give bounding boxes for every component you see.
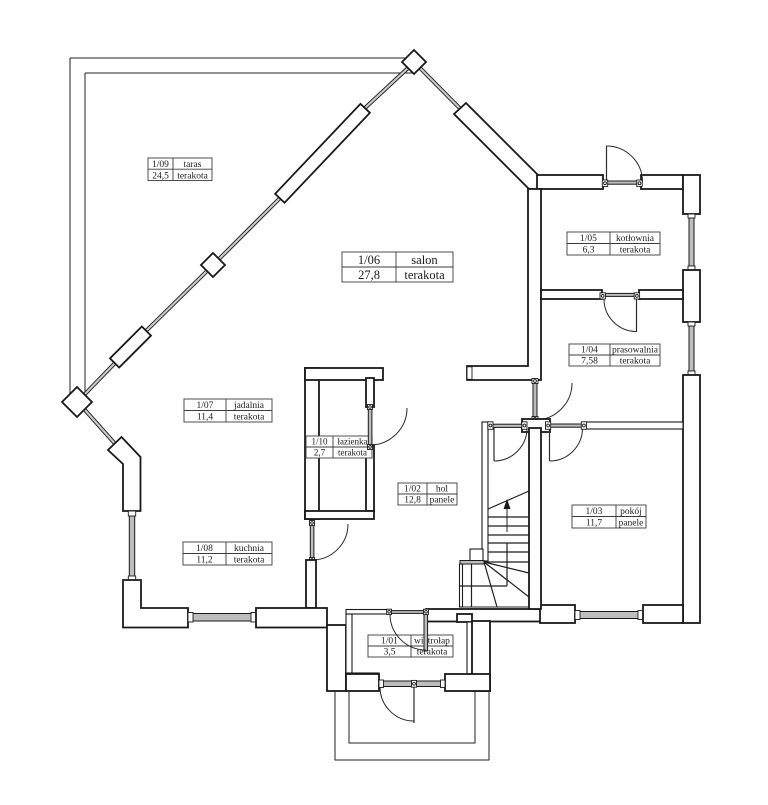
svg-text:2,7: 2,7: [314, 448, 326, 458]
svg-text:terakota: terakota: [417, 648, 448, 658]
svg-text:salon: salon: [411, 253, 438, 267]
svg-text:11,2: 11,2: [196, 556, 213, 566]
svg-text:wiatrołap: wiatrołap: [414, 637, 450, 647]
svg-text:panele: panele: [430, 496, 455, 506]
svg-text:kuchnia: kuchnia: [234, 544, 265, 554]
svg-text:terakota: terakota: [338, 448, 367, 458]
svg-text:1/05: 1/05: [580, 234, 597, 244]
svg-text:1/01: 1/01: [381, 637, 398, 647]
svg-text:1/06: 1/06: [358, 253, 380, 267]
svg-text:terakota: terakota: [234, 413, 265, 423]
svg-text:hol: hol: [436, 485, 449, 495]
svg-text:1/08: 1/08: [196, 544, 213, 554]
svg-text:27,8: 27,8: [358, 268, 380, 282]
svg-text:taras: taras: [184, 160, 202, 170]
svg-text:prasowalnia: prasowalnia: [612, 346, 659, 356]
svg-text:jadalnia: jadalnia: [233, 401, 265, 411]
svg-text:terakota: terakota: [177, 171, 208, 181]
svg-text:1/10: 1/10: [311, 437, 328, 447]
svg-text:7,58: 7,58: [581, 357, 598, 367]
svg-text:1/02: 1/02: [404, 485, 421, 495]
svg-text:łazienka: łazienka: [338, 437, 368, 447]
svg-text:11,7: 11,7: [586, 519, 603, 529]
svg-text:11,4: 11,4: [197, 413, 214, 423]
svg-text:12,8: 12,8: [404, 496, 421, 506]
svg-text:terakota: terakota: [234, 556, 265, 566]
svg-text:panele: panele: [619, 519, 644, 529]
svg-text:kotłownia: kotłownia: [616, 234, 655, 244]
svg-text:3,5: 3,5: [384, 648, 396, 658]
svg-text:1/09: 1/09: [152, 160, 169, 170]
svg-text:24,5: 24,5: [152, 171, 169, 181]
svg-text:1/04: 1/04: [581, 346, 598, 356]
svg-text:1/03: 1/03: [586, 507, 603, 517]
svg-text:terakota: terakota: [404, 268, 445, 282]
svg-text:6,3: 6,3: [583, 246, 595, 256]
svg-text:terakota: terakota: [620, 246, 651, 256]
svg-text:pokój: pokój: [620, 507, 642, 517]
svg-text:terakota: terakota: [620, 357, 651, 367]
svg-text:1/07: 1/07: [197, 401, 214, 411]
